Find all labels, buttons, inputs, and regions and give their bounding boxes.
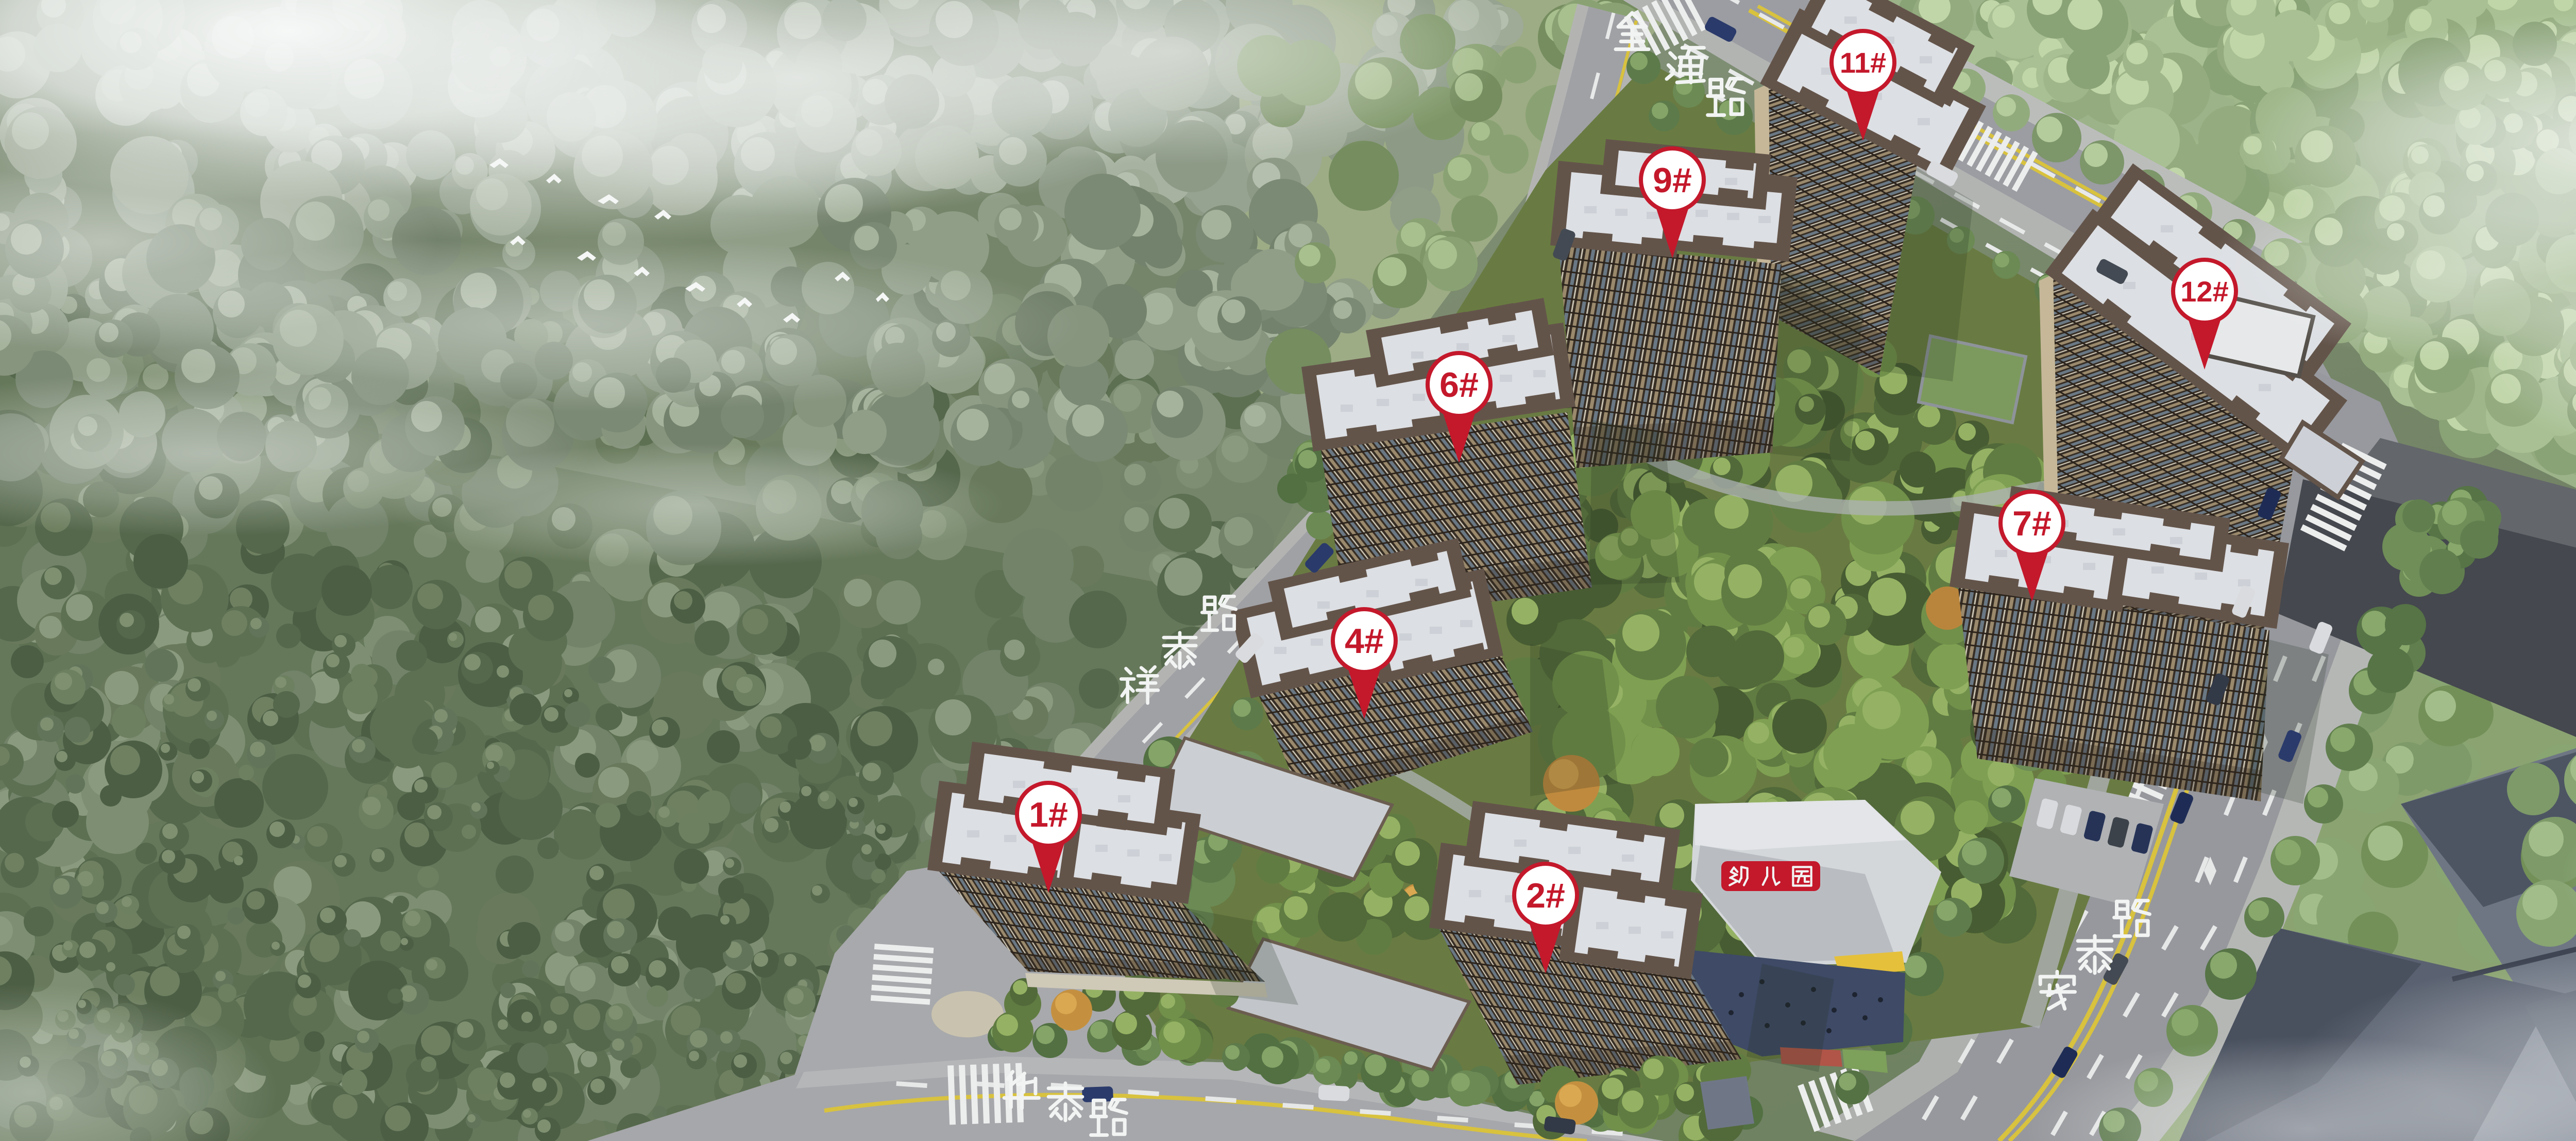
svg-text:6#: 6# [1439,365,1479,405]
svg-text:7#: 7# [2012,504,2052,543]
svg-text:12#: 12# [2180,275,2228,308]
svg-text:4#: 4# [1345,622,1384,661]
svg-text:2#: 2# [1526,876,1565,915]
svg-text:9#: 9# [1653,161,1692,200]
svg-text:1#: 1# [1029,795,1068,834]
svg-text:11#: 11# [1840,46,1886,79]
